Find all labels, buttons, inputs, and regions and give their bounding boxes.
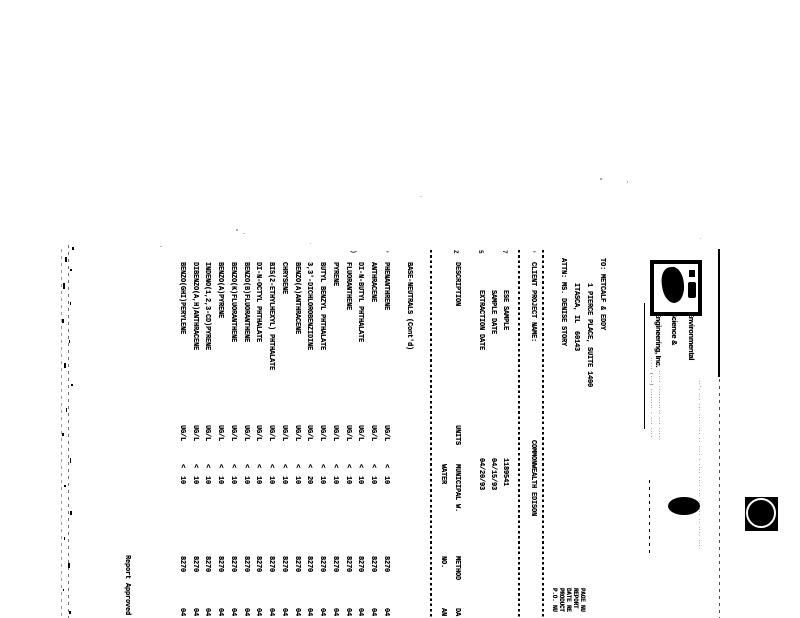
noise-speck bbox=[243, 233, 245, 234]
table-row: BENZO(A)ANTHRACENEUG/L< 10827004 bbox=[288, 245, 301, 618]
analyte-method: 8270 bbox=[369, 556, 377, 572]
analyte-method: 8270 bbox=[229, 556, 237, 572]
analyte-units: UG/L bbox=[242, 425, 250, 441]
col-header-units: UNITS bbox=[453, 425, 461, 445]
analyte-name: PYRENE bbox=[331, 262, 339, 286]
noise-speck bbox=[63, 589, 64, 591]
noise-speck bbox=[236, 229, 238, 231]
table-row: 3,3'-DICHLOROBENZIDINEUG/L< 20827004 bbox=[301, 245, 314, 618]
addressee-line: ITASCA, IL 60143 bbox=[572, 283, 580, 351]
analyte-name: BENZO(GHI)PERYLENE bbox=[178, 262, 186, 334]
analyte-date: 04 bbox=[357, 608, 365, 616]
table-row: BENZO(A)PYRENEUG/L< 10827004 bbox=[212, 245, 225, 618]
noise-speck bbox=[69, 563, 71, 568]
noise-speck bbox=[64, 537, 65, 540]
analyte-method: 8270 bbox=[204, 556, 212, 572]
client-project-value: COMMONWEALTH EDISON bbox=[529, 440, 537, 516]
ink-blob-mark bbox=[668, 497, 700, 515]
logo-mark-icon bbox=[688, 282, 696, 298]
separator-line bbox=[518, 250, 520, 618]
analyte-name: DIBENZO(A,H)ANTHRACENE bbox=[191, 262, 199, 350]
analyte-name: BUTYL BENZYL PHTHALATE bbox=[318, 262, 326, 350]
analyte-name: BIS(2-ETHYLHEXYL) PHTHALATE bbox=[267, 262, 275, 370]
analyte-name: ANTHRACENE bbox=[369, 262, 377, 302]
separator-line bbox=[542, 250, 544, 618]
po-number-label: P.O. NU bbox=[551, 588, 558, 612]
analyte-date: 04 bbox=[242, 608, 250, 616]
noise-speck bbox=[69, 611, 71, 614]
analyte-method: 8270 bbox=[267, 556, 275, 572]
analyte-result: < 10 bbox=[267, 464, 275, 484]
noise-speck bbox=[69, 340, 70, 343]
analyte-table: PHENANTHRENEUG/L< 10827004 ANTHRACENEUG/… bbox=[173, 245, 390, 618]
analyte-date: 04 bbox=[255, 608, 263, 616]
noise-speck bbox=[66, 257, 68, 262]
extraction-date-label: EXTRACTION DATE bbox=[477, 290, 485, 350]
logo-blob-icon bbox=[660, 266, 687, 305]
noise-speck bbox=[310, 243, 311, 244]
analyte-result: < 10 bbox=[242, 464, 250, 484]
analyte-result: < 20 bbox=[306, 464, 314, 484]
table-row: PHENANTHRENEUG/L< 10827004 bbox=[377, 245, 390, 618]
lab-report-document: Environmental Science & Engineering, Inc… bbox=[48, 245, 720, 618]
analyte-date: 04 bbox=[216, 608, 224, 616]
analyte-method: 8270 bbox=[191, 556, 199, 572]
stray-mark: ' bbox=[382, 250, 389, 254]
analyte-method: 8270 bbox=[382, 556, 390, 572]
analyte-method: 8270 bbox=[344, 556, 352, 572]
analyte-name: BENZO(A)ANTHRACENE bbox=[293, 262, 301, 334]
analyte-units: UG/L bbox=[344, 425, 352, 441]
analyte-name: PHENANTHRENE bbox=[382, 262, 390, 310]
logo-mark-icon bbox=[689, 270, 695, 277]
analyte-name: DI-N-OCTYL PHTHALATE bbox=[255, 262, 263, 342]
analyte-date: 04 bbox=[229, 608, 237, 616]
noise-speck bbox=[70, 302, 71, 305]
top-margin-microtext: ··'· ··· ·-· ···· ··· ·· ···· · ···· ···… bbox=[697, 380, 702, 550]
analyte-method: 8270 bbox=[293, 556, 301, 572]
noise-speck bbox=[627, 181, 628, 183]
analyte-units: UG/L bbox=[318, 425, 326, 441]
analyte-units: UG/L bbox=[331, 425, 339, 441]
analyte-result: < 10 bbox=[216, 464, 224, 484]
table-row: PYRENEUG/L< 10827004 bbox=[326, 245, 339, 618]
noise-speck bbox=[72, 247, 74, 250]
analyte-units: UG/L bbox=[306, 425, 314, 441]
page-number-label: PAGE NU bbox=[579, 588, 586, 612]
ese-sample-label: ESE SAMPLE bbox=[501, 290, 509, 330]
analyte-units: UG/L bbox=[357, 425, 365, 441]
table-row: INDENO(1,2,3-CD)PYRENEUG/L< 10827004 bbox=[199, 245, 212, 618]
table-row: ANTHRACENEUG/L< 10827004 bbox=[365, 245, 378, 618]
table-row: BENZO(GHI)PERYLENEUG/L< 10827004 bbox=[173, 245, 186, 618]
analyte-result: < 10 bbox=[191, 464, 199, 484]
analyte-date: 04 bbox=[382, 608, 390, 616]
analyte-units: UG/L bbox=[229, 425, 237, 441]
analyte-date: 04 bbox=[293, 608, 301, 616]
analyte-name: FLUORANTHENE bbox=[344, 262, 352, 310]
analyte-result: < 10 bbox=[229, 464, 237, 484]
analyte-method: 8270 bbox=[357, 556, 365, 572]
stray-mark: 7 bbox=[501, 250, 508, 254]
analyte-date: 04 bbox=[318, 608, 326, 616]
sample-date-label: SAMPLE DATE bbox=[489, 290, 497, 334]
separator-line bbox=[430, 250, 432, 618]
analyte-units: UG/L bbox=[369, 425, 377, 441]
col-header-method: METHOD bbox=[453, 556, 461, 580]
stray-mark: 5 bbox=[477, 250, 484, 254]
analyte-method: 8270 bbox=[318, 556, 326, 572]
product-label: PRODUCT bbox=[558, 588, 565, 612]
client-project-label: CLIENT PROJECT NAME: bbox=[529, 262, 537, 342]
analyte-name: DI-N-BUTYL PHTHALATE bbox=[357, 262, 365, 342]
noise-speck bbox=[64, 283, 66, 289]
hole-ring-icon bbox=[746, 498, 776, 528]
analyte-name: BENZO(B)FLUORANTHENE bbox=[242, 262, 250, 342]
analyte-name: BENZO(A)PYRENE bbox=[216, 262, 224, 318]
analyte-result: < 10 bbox=[280, 464, 288, 484]
analyte-date: 04 bbox=[204, 608, 212, 616]
analyte-result: < 10 bbox=[357, 464, 365, 484]
noise-speck bbox=[71, 384, 73, 386]
analyte-units: UG/L bbox=[267, 425, 275, 441]
scanned-page: Environmental Science & Engineering, Inc… bbox=[0, 0, 800, 618]
noise-speck bbox=[160, 246, 162, 247]
analyte-units: UG/L bbox=[216, 425, 224, 441]
addressee-line: 1 PIERCE PLACE, SUITE 1400 bbox=[585, 283, 593, 387]
analyte-result: < 10 bbox=[331, 464, 339, 484]
analyte-units: UG/L bbox=[178, 425, 186, 441]
analyte-name: BENZO(K)FLUORANTHENE bbox=[229, 262, 237, 342]
analyte-date: 04 bbox=[344, 608, 352, 616]
analyte-date: 04 bbox=[331, 608, 339, 616]
analyte-units: UG/L bbox=[382, 425, 390, 441]
table-row: BIS(2-ETHYLHEXYL) PHTHALATEUG/L< 1082700… bbox=[263, 245, 276, 618]
table-row: DI-N-OCTYL PHTHALATEUG/L< 10827004 bbox=[250, 245, 263, 618]
noise-speck bbox=[600, 178, 602, 180]
table-row: BENZO(K)FLUORANTHENEUG/L< 10827004 bbox=[224, 245, 237, 618]
table-row: BENZO(B)FLUORANTHENEUG/L< 10827004 bbox=[237, 245, 250, 618]
analyte-result: < 10 bbox=[255, 464, 263, 484]
table-row: CHRYSENEUG/L< 10827004 bbox=[275, 245, 288, 618]
analyte-method: 8270 bbox=[306, 556, 314, 572]
company-name-line: Science & bbox=[670, 312, 679, 345]
analyte-method: 8270 bbox=[178, 556, 186, 572]
stray-mark: Z bbox=[452, 250, 459, 254]
col-header-matrix2: WATER bbox=[439, 464, 447, 484]
analyte-units: UG/L bbox=[293, 425, 301, 441]
col-header-date-analyzed2: AN bbox=[439, 608, 447, 616]
sample-date-value: 04/15/93 bbox=[489, 458, 497, 490]
analyte-name: INDENO(1,2,3-CD)PYRENE bbox=[204, 262, 212, 350]
noise-speck bbox=[70, 511, 72, 515]
noise-speck bbox=[70, 269, 72, 271]
analyte-result: < 10 bbox=[382, 464, 390, 484]
letterhead-rule-dashes bbox=[649, 480, 650, 554]
analyte-units: UG/L bbox=[204, 425, 212, 441]
analyte-date: 04 bbox=[280, 608, 288, 616]
addressee-line: TO: METCALF & EDDY bbox=[598, 258, 606, 330]
col-header-matrix: MUNICIPAL W. bbox=[453, 464, 461, 512]
analyte-result: < 10 bbox=[318, 464, 326, 484]
analyte-result: < 10 bbox=[178, 464, 186, 484]
analyte-result: < 10 bbox=[344, 464, 352, 484]
analyte-date: 04 bbox=[369, 608, 377, 616]
analyte-result: < 10 bbox=[293, 464, 301, 484]
section-title: BASE-NEUTRALS (Cont'd) bbox=[405, 262, 413, 350]
analyte-units: UG/L bbox=[255, 425, 263, 441]
analyte-method: 8270 bbox=[255, 556, 263, 572]
noise-speck bbox=[65, 363, 67, 368]
ese-sample-value: 1189541 bbox=[501, 458, 509, 486]
analyte-name: CHRYSENE bbox=[280, 262, 288, 294]
analyte-date: 04 bbox=[178, 608, 186, 616]
analyte-date: 04 bbox=[306, 608, 314, 616]
analyte-method: 8270 bbox=[331, 556, 339, 572]
stray-mark: ) bbox=[350, 250, 357, 254]
analyte-result: < 10 bbox=[204, 464, 212, 484]
letterhead-rule bbox=[644, 303, 645, 429]
extraction-date-value: 04/20/93 bbox=[477, 458, 485, 490]
analyte-method: 8270 bbox=[280, 556, 288, 572]
registration-hole-mark bbox=[745, 497, 778, 531]
table-row: BUTYL BENZYL PHTHALATEUG/L< 10827004 bbox=[314, 245, 327, 618]
letterhead-microtext: ···· ····· ··········· ··· ····· bbox=[657, 357, 662, 440]
noise-speck bbox=[700, 238, 701, 239]
noise-speck bbox=[66, 408, 67, 412]
letterhead-microtext: ····· (···) ···-···· · ··· ···· bbox=[649, 357, 654, 438]
noise-speck bbox=[70, 458, 71, 463]
scan-edge-dashes bbox=[719, 379, 720, 618]
col-header-method2: NO. bbox=[439, 556, 447, 568]
table-row: DI-N-BUTYL PHTHALATEUG/L< 10827004 bbox=[352, 245, 365, 618]
noise-speck bbox=[65, 485, 67, 487]
analyte-date: 04 bbox=[191, 608, 199, 616]
ese-logo bbox=[650, 260, 702, 316]
report-label: REPORT bbox=[572, 588, 579, 608]
table-row: DIBENZO(A,H)ANTHRACENEUG/L< 10827004 bbox=[186, 245, 199, 618]
addressee-line: ATTN: MS. DENISE STORY bbox=[559, 258, 567, 346]
noise-speck bbox=[62, 319, 64, 323]
company-name-line: Environmental bbox=[687, 312, 696, 360]
analyte-name: 3,3'-DICHLOROBENZIDINE bbox=[306, 262, 314, 350]
stray-mark: ' bbox=[529, 250, 536, 254]
analyte-units: UG/L bbox=[280, 425, 288, 441]
col-header-date-analyzed: DA bbox=[453, 608, 461, 616]
noise-speck bbox=[62, 433, 64, 436]
analyte-result: < 10 bbox=[369, 464, 377, 484]
noise-speck bbox=[420, 196, 422, 197]
date-received-label: DATE RE bbox=[565, 588, 572, 612]
report-approved-label: Report Approved b bbox=[123, 555, 131, 618]
col-header-description: DESCRIPTION bbox=[453, 262, 461, 306]
analyte-method: 8270 bbox=[216, 556, 224, 572]
scan-edge-line bbox=[718, 249, 720, 377]
analyte-units: UG/L bbox=[191, 425, 199, 441]
analyte-method: 8270 bbox=[242, 556, 250, 572]
analyte-date: 04 bbox=[267, 608, 275, 616]
table-row: FLUORANTHENEUG/L< 10827004 bbox=[339, 245, 352, 618]
